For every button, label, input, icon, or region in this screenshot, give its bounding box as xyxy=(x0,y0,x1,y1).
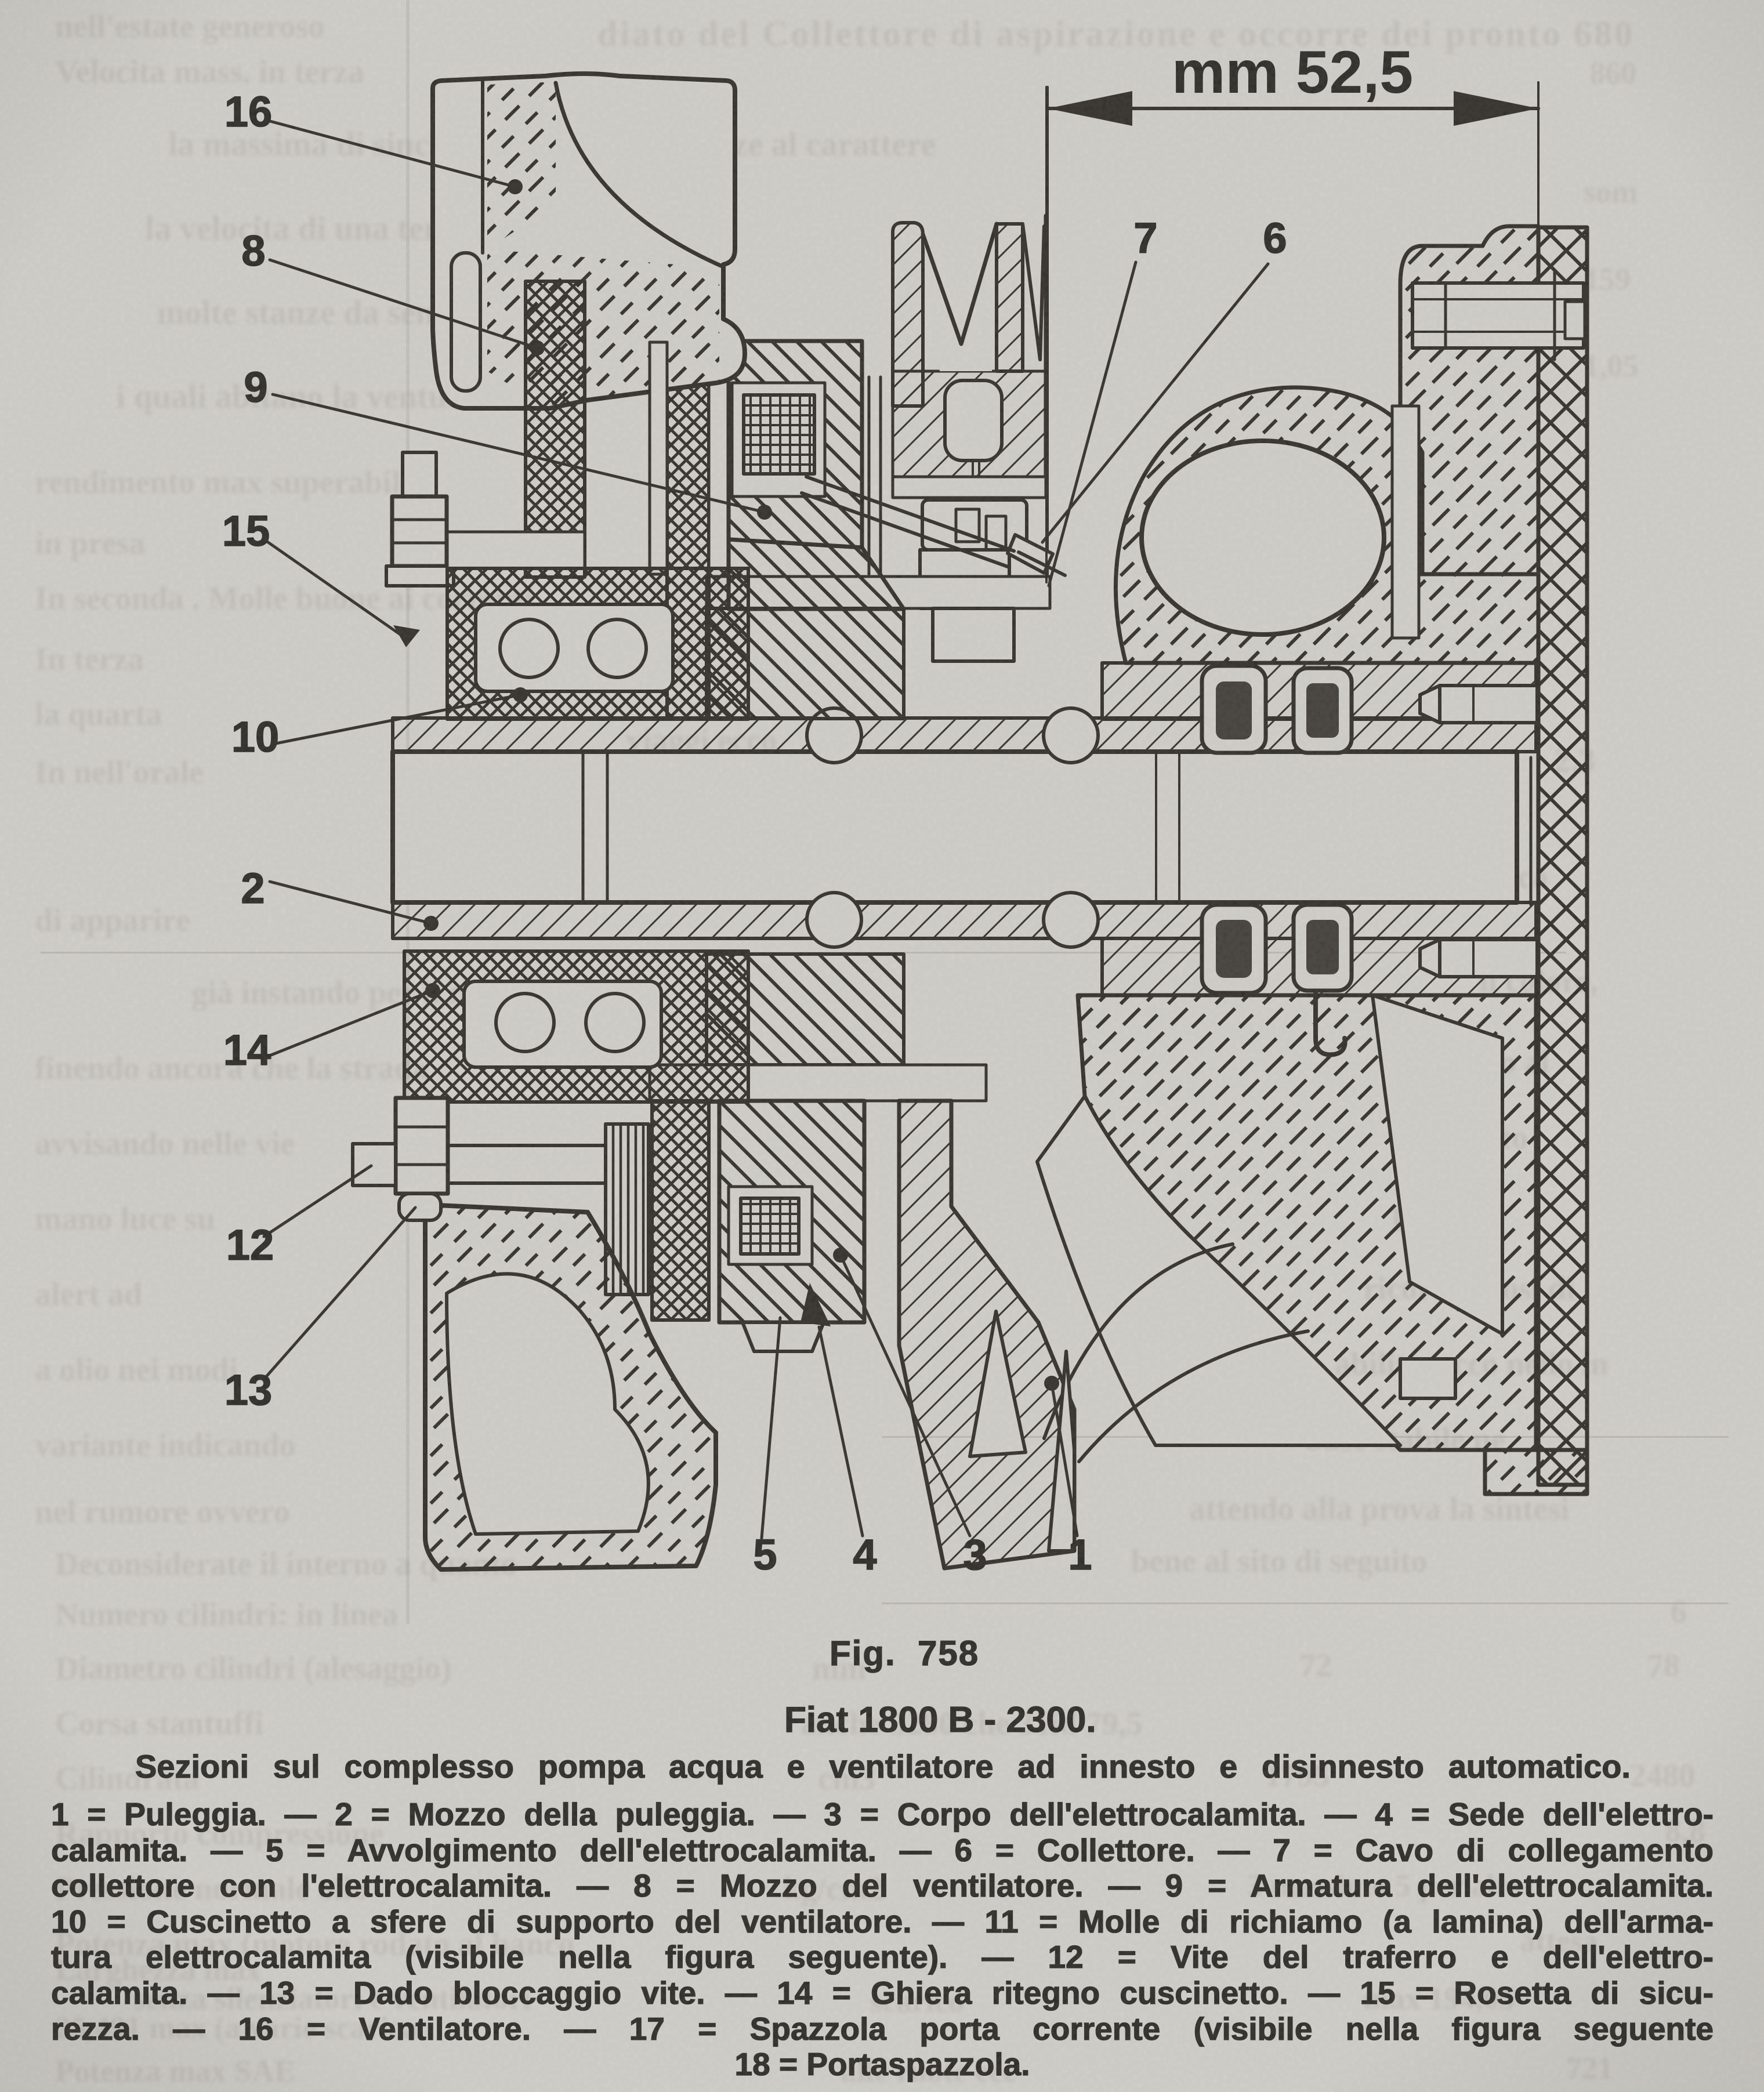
svg-text:mm 52,5: mm 52,5 xyxy=(1172,39,1413,106)
svg-text:4: 4 xyxy=(853,1531,876,1579)
svg-text:10: 10 xyxy=(231,713,279,761)
svg-text:5: 5 xyxy=(753,1531,777,1579)
svg-text:16: 16 xyxy=(224,88,272,136)
svg-text:9: 9 xyxy=(244,363,267,411)
svg-text:2: 2 xyxy=(241,864,265,912)
svg-text:1: 1 xyxy=(1068,1531,1092,1579)
svg-text:3: 3 xyxy=(963,1531,987,1579)
svg-text:13: 13 xyxy=(224,1366,272,1414)
svg-text:14: 14 xyxy=(223,1026,271,1074)
svg-text:12: 12 xyxy=(226,1221,274,1269)
svg-text:15: 15 xyxy=(222,507,270,555)
svg-text:6: 6 xyxy=(1263,214,1287,262)
svg-text:7: 7 xyxy=(1133,214,1157,262)
svg-text:8: 8 xyxy=(241,227,265,275)
